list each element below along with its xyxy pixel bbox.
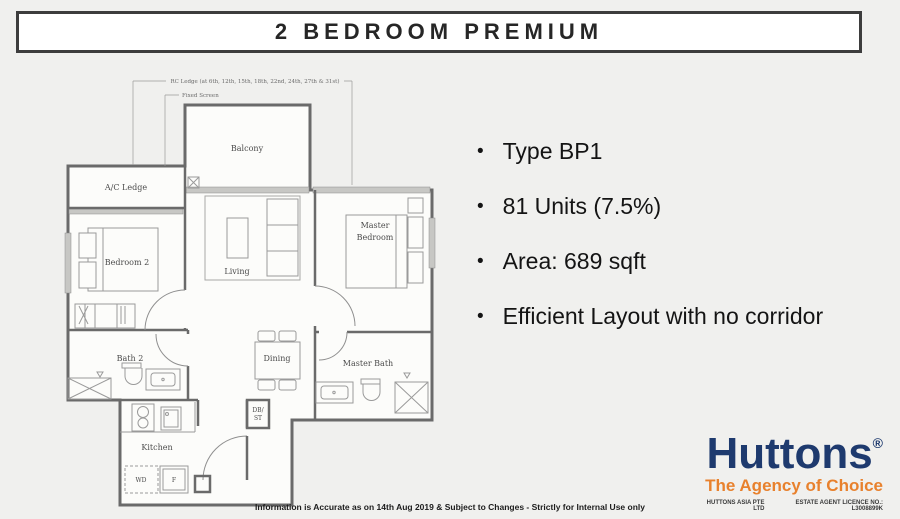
room-label-kitchen: Kitchen xyxy=(141,443,172,452)
registered-mark: ® xyxy=(873,435,883,451)
bullet-icon: • xyxy=(477,306,484,328)
bedroom2-pillow xyxy=(79,262,96,288)
rc-ledge-annotation: RC Ledge (at 6th, 12th, 15th, 18th, 22nd… xyxy=(170,78,339,85)
list-item: • 81 Units (7.5%) xyxy=(477,179,823,234)
floor-plan: RC Ledge (at 6th, 12th, 15th, 18th, 22nd… xyxy=(55,68,445,508)
label-wd: WD xyxy=(136,477,147,484)
list-item: • Type BP1 xyxy=(477,124,823,179)
room-label-master-line1: Master xyxy=(361,221,390,230)
dining-chair xyxy=(258,331,275,341)
room-label-ac-ledge: A/C Ledge xyxy=(104,183,147,192)
room-label-bedroom2: Bedroom 2 xyxy=(105,258,149,267)
master-toilet-tank xyxy=(361,379,380,384)
room-label-dining: Dining xyxy=(264,354,291,363)
label-st: ST xyxy=(254,415,262,422)
bullet-icon: • xyxy=(477,141,484,163)
room-label-living: Living xyxy=(224,267,249,276)
room-label-master-line2: Bedroom xyxy=(357,233,394,242)
detail-type: Type BP1 xyxy=(503,138,603,165)
master-closet xyxy=(408,198,423,213)
logo-brand-text: Huttons® xyxy=(695,432,883,476)
master-pillow xyxy=(408,217,423,248)
bedroom2-side-window xyxy=(65,233,71,293)
detail-units: 81 Units (7.5%) xyxy=(503,193,662,220)
master-side-window xyxy=(429,218,435,268)
list-item: • Efficient Layout with no corridor xyxy=(477,289,823,344)
master-window xyxy=(313,187,430,193)
page-title: 2 BEDROOM PREMIUM xyxy=(275,19,603,45)
logo-tagline: The Agency of Choice xyxy=(695,477,883,494)
detail-area: Area: 689 sqft xyxy=(503,248,646,275)
bedroom2-pillow xyxy=(79,233,96,258)
balcony-sliding-door xyxy=(186,187,309,193)
sofa xyxy=(267,199,298,276)
master-pillow xyxy=(408,252,423,283)
logo-legal-row: HUTTONS ASIA PTE LTD ESTATE AGENT LICENC… xyxy=(695,500,883,512)
room-label-master-bath: Master Bath xyxy=(343,359,393,368)
bedroom2-window xyxy=(69,209,183,214)
unit-details-list: • Type BP1 • 81 Units (7.5%) • Area: 689… xyxy=(477,124,823,344)
licence-number: ESTATE AGENT LICENCE NO.: L3008899K xyxy=(764,500,883,512)
slide: 2 BEDROOM PREMIUM xyxy=(0,0,900,519)
label-fridge: F xyxy=(172,477,176,484)
room-label-balcony: Balcony xyxy=(231,144,264,153)
bullet-icon: • xyxy=(477,196,484,218)
huttons-logo: Huttons® The Agency of Choice HUTTONS AS… xyxy=(695,432,883,512)
dining-chair xyxy=(279,380,296,390)
brand-name: Huttons xyxy=(706,429,872,478)
coffee-table xyxy=(227,218,248,258)
company-name: HUTTONS ASIA PTE LTD xyxy=(695,500,764,512)
bath2-toilet-tank xyxy=(122,363,141,368)
label-db: DB/ xyxy=(252,407,264,414)
fixed-screen-annotation: Fixed Screen xyxy=(182,93,219,99)
detail-layout: Efficient Layout with no corridor xyxy=(503,303,823,330)
master-bath-vanity xyxy=(316,382,353,403)
dining-chair xyxy=(279,331,296,341)
list-item: • Area: 689 sqft xyxy=(477,234,823,289)
title-box: 2 BEDROOM PREMIUM xyxy=(16,11,862,53)
dining-chair xyxy=(258,380,275,390)
bullet-icon: • xyxy=(477,251,484,273)
room-label-bath2: Bath 2 xyxy=(117,354,144,363)
